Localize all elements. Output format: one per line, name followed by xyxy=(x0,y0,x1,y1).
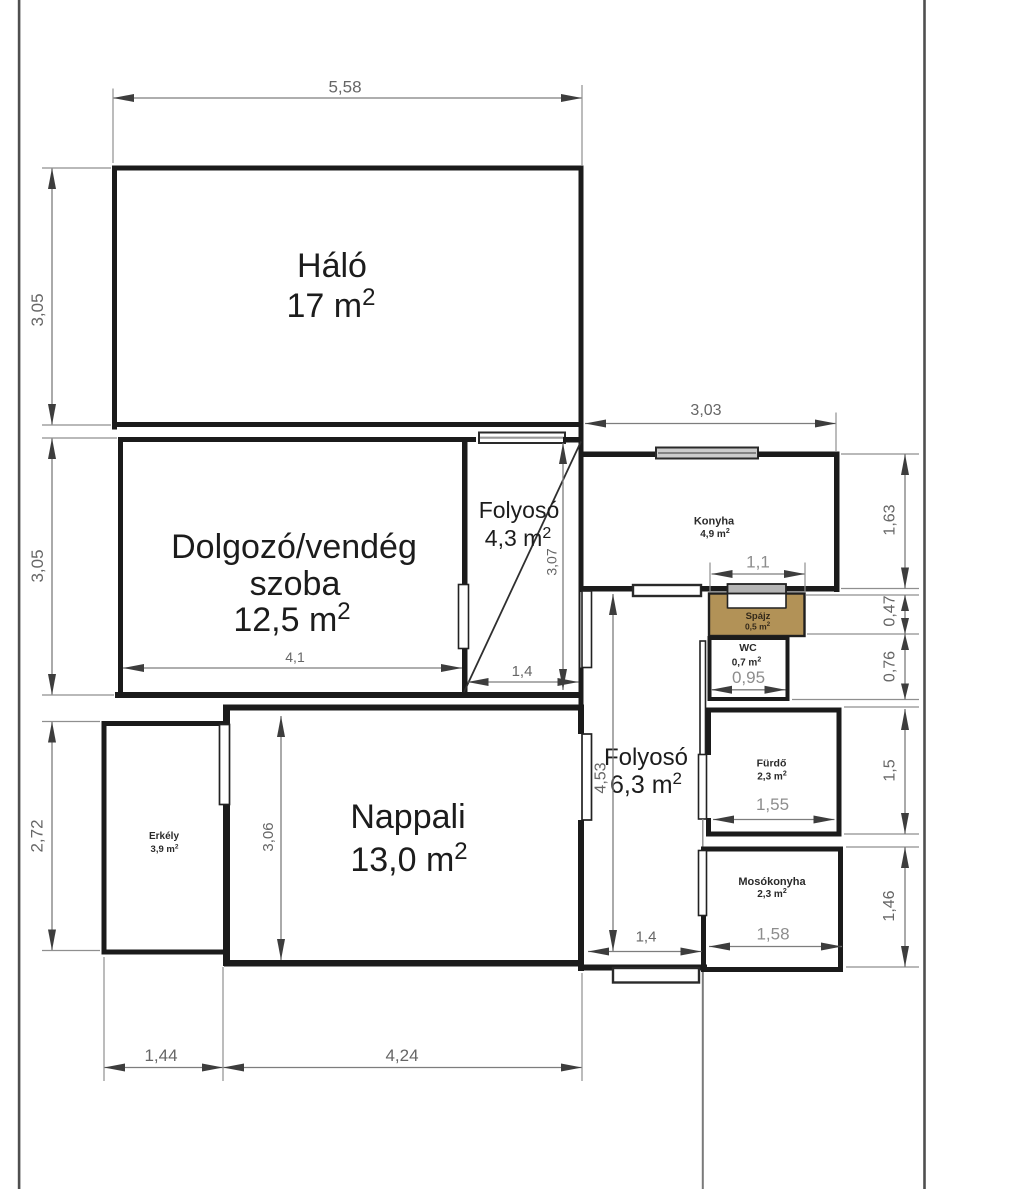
svg-text:0,7 m2: 0,7 m2 xyxy=(732,657,762,669)
svg-text:1,4: 1,4 xyxy=(636,929,657,946)
svg-text:Fürdő: Fürdő xyxy=(757,758,787,770)
svg-text:1,5: 1,5 xyxy=(882,759,899,781)
svg-text:0,95: 0,95 xyxy=(732,668,765,687)
svg-text:2,3 m2: 2,3 m2 xyxy=(757,771,787,783)
svg-text:Mosókonyha: Mosókonyha xyxy=(738,876,806,888)
svg-text:WC: WC xyxy=(739,642,757,654)
svg-text:1,63: 1,63 xyxy=(882,504,899,535)
svg-text:Spájz: Spájz xyxy=(746,611,771,622)
svg-text:1,4: 1,4 xyxy=(512,663,533,680)
svg-text:1,1: 1,1 xyxy=(746,552,770,571)
svg-text:3,05: 3,05 xyxy=(28,549,47,582)
svg-text:szoba: szoba xyxy=(250,565,341,603)
svg-text:Erkély: Erkély xyxy=(149,831,179,842)
svg-text:3,9 m2: 3,9 m2 xyxy=(151,844,179,856)
svg-text:3,03: 3,03 xyxy=(690,402,721,419)
svg-text:Nappali: Nappali xyxy=(350,798,465,836)
svg-text:4,9 m2: 4,9 m2 xyxy=(700,528,730,540)
svg-text:Folyosó: Folyosó xyxy=(604,744,688,771)
svg-text:13,0 m2: 13,0 m2 xyxy=(350,838,467,879)
svg-text:6,3 m2: 6,3 m2 xyxy=(610,769,682,799)
svg-text:4,53: 4,53 xyxy=(593,762,610,793)
svg-text:5,58: 5,58 xyxy=(328,78,361,97)
svg-text:Konyha: Konyha xyxy=(694,515,735,527)
svg-text:Dolgozó/vendég: Dolgozó/vendég xyxy=(171,528,417,566)
svg-text:0,47: 0,47 xyxy=(882,595,899,626)
svg-text:2,3 m2: 2,3 m2 xyxy=(757,888,787,900)
svg-text:Folyosó: Folyosó xyxy=(479,497,560,523)
svg-text:3,06: 3,06 xyxy=(260,822,277,851)
svg-text:2,72: 2,72 xyxy=(28,819,47,852)
svg-text:Háló: Háló xyxy=(297,247,367,285)
svg-text:4,1: 4,1 xyxy=(285,649,305,665)
svg-text:0,76: 0,76 xyxy=(882,651,899,682)
svg-text:3,07: 3,07 xyxy=(544,548,560,575)
svg-text:1,55: 1,55 xyxy=(756,795,789,814)
svg-text:1,44: 1,44 xyxy=(144,1046,177,1065)
svg-text:4,24: 4,24 xyxy=(385,1046,418,1065)
svg-text:3,05: 3,05 xyxy=(28,293,47,326)
svg-text:1,58: 1,58 xyxy=(756,925,789,944)
svg-text:12,5 m2: 12,5 m2 xyxy=(233,598,350,639)
svg-text:1,46: 1,46 xyxy=(881,890,898,921)
svg-text:4,3 m2: 4,3 m2 xyxy=(485,525,552,551)
